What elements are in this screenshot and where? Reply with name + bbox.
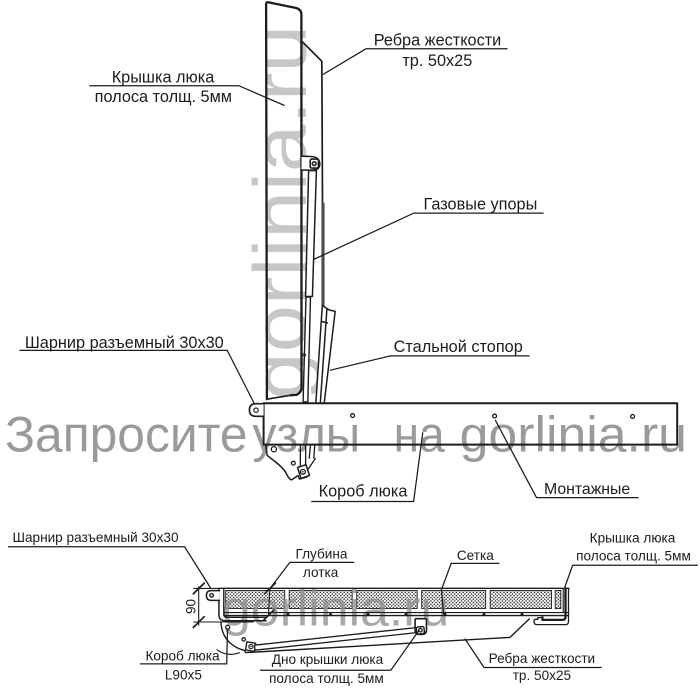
svg-text:узлы: узлы	[253, 407, 361, 463]
svg-text:Крышка люка: Крышка люка	[590, 531, 676, 546]
svg-text:Короб люка: Короб люка	[145, 648, 220, 663]
svg-text:Стальной стопор: Стальной стопор	[394, 338, 523, 356]
svg-text:Газовые упоры: Газовые упоры	[423, 196, 537, 214]
svg-text:Сетка: Сетка	[457, 548, 494, 563]
svg-text:Глубина: Глубина	[296, 547, 348, 562]
svg-text:полоса толщ. 5мм: полоса толщ. 5мм	[576, 549, 691, 564]
svg-text:тр. 50х25: тр. 50х25	[513, 668, 571, 683]
svg-text:на: на	[394, 407, 445, 463]
svg-text:L90х5: L90х5	[165, 668, 202, 683]
svg-text:Ребра жесткости: Ребра жесткости	[374, 32, 502, 50]
svg-text:Крышка люка: Крышка люка	[112, 69, 216, 87]
svg-text:тр. 50х25: тр. 50х25	[402, 52, 472, 70]
svg-text:Ребра жесткости: Ребра жесткости	[489, 651, 596, 666]
svg-text:Шарнир разъемный 30х30: Шарнир разъемный 30х30	[25, 334, 224, 352]
svg-text:полоса толщ. 5мм: полоса толщ. 5мм	[269, 671, 384, 686]
svg-text:полоса толщ. 5мм: полоса толщ. 5мм	[95, 88, 232, 106]
svg-text:лотка: лотка	[303, 565, 339, 580]
svg-text:90: 90	[184, 599, 199, 614]
svg-text:Запросите: Запросите	[5, 407, 248, 463]
svg-text:Шарнир разъемный 30х30: Шарнир разъемный 30х30	[13, 530, 179, 545]
svg-text:Дно крышки люка: Дно крышки люка	[272, 652, 384, 667]
svg-text:Короб люка: Короб люка	[319, 483, 409, 501]
svg-text:Монтажные: Монтажные	[544, 481, 630, 498]
